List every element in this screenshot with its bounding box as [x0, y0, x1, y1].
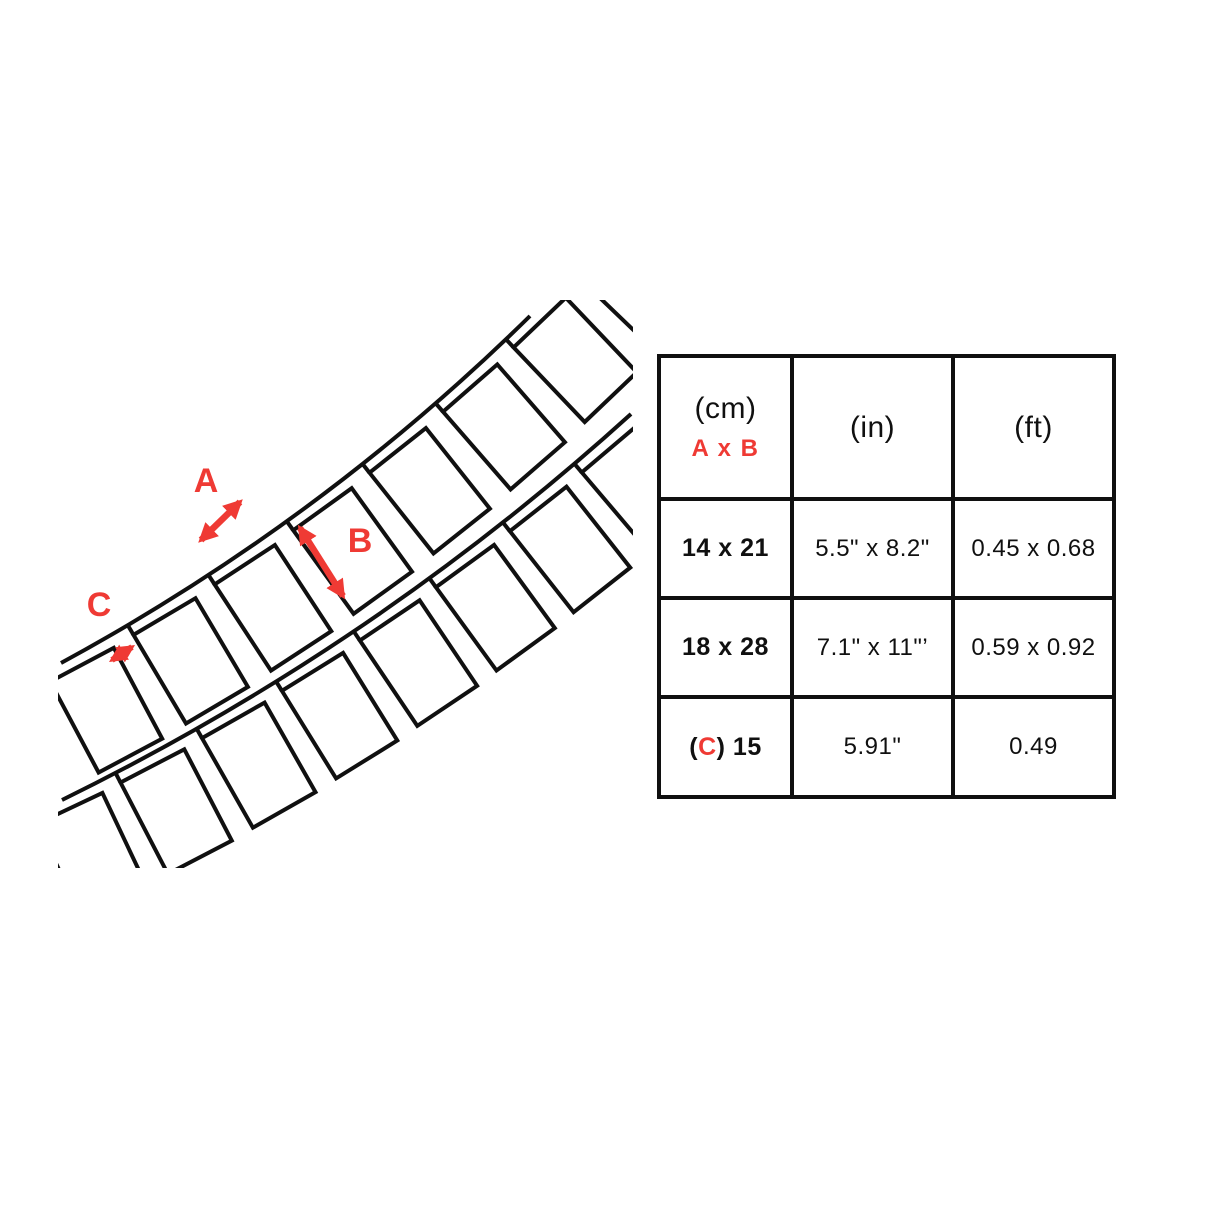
table-row-cell: 5.5" x 8.2": [794, 501, 955, 600]
header-cm-dims: A x B: [692, 435, 760, 463]
flag-tab: [45, 672, 50, 682]
flag-tab: [33, 814, 38, 824]
header-in-unit: (in): [850, 411, 895, 445]
bunting-flag: [50, 648, 162, 773]
size-c-value: (C) 15: [689, 733, 761, 762]
flag-tab: [573, 272, 581, 280]
size-ft-value: 0.49: [1009, 733, 1058, 761]
size-ft-value: 0.45 x 0.68: [971, 535, 1095, 563]
table-row-cell: 5.91": [794, 699, 955, 795]
poster-canvas: A B C (cm) A x B (in) (ft) 14 x 21 5.5" …: [0, 0, 1214, 1214]
table-row-cell: 0.59 x 0.92: [955, 600, 1112, 699]
dimension-arrow-a: [201, 502, 240, 540]
size-cm-value: 14 x 21: [682, 534, 769, 563]
header-cell-cm: (cm) A x B: [661, 358, 794, 501]
bunting-flag: [215, 545, 332, 671]
table-row-cell: 0.49: [955, 699, 1112, 795]
size-in-value: 7.1" x 11"’: [817, 634, 928, 662]
size-in-value: 5.5" x 8.2": [815, 535, 930, 563]
bunting-flag: [37, 793, 146, 917]
size-cm-value: 18 x 28: [682, 633, 769, 662]
table-row-cell: 18 x 28: [661, 600, 794, 699]
header-ft-unit: (ft): [1014, 411, 1053, 445]
header-cell-in: (in): [794, 358, 955, 501]
table-row-cell: 14 x 21: [661, 501, 794, 600]
bunting-flag: [121, 749, 232, 874]
c-letter: C: [698, 733, 717, 761]
size-ft-value: 0.59 x 0.92: [971, 634, 1095, 662]
header-cell-ft: (ft): [955, 358, 1112, 501]
table-row-cell: 0.45 x 0.68: [955, 501, 1112, 600]
table-row-cell: 7.1" x 11"’: [794, 600, 955, 699]
size-table: (cm) A x B (in) (ft) 14 x 21 5.5" x 8.2"…: [657, 354, 1116, 799]
c-paren-close: ) 15: [717, 733, 762, 761]
dimension-label-b: B: [348, 522, 373, 560]
dimension-label-c: C: [87, 586, 112, 624]
table-row-cell: (C) 15: [661, 699, 794, 795]
bunting-flag: [134, 598, 248, 723]
c-paren-open: (: [689, 733, 698, 761]
flag-tab: [644, 403, 651, 411]
size-in-value: 5.91": [844, 733, 902, 761]
header-cm-unit: (cm): [695, 392, 757, 426]
dimension-label-a: A: [194, 462, 219, 500]
